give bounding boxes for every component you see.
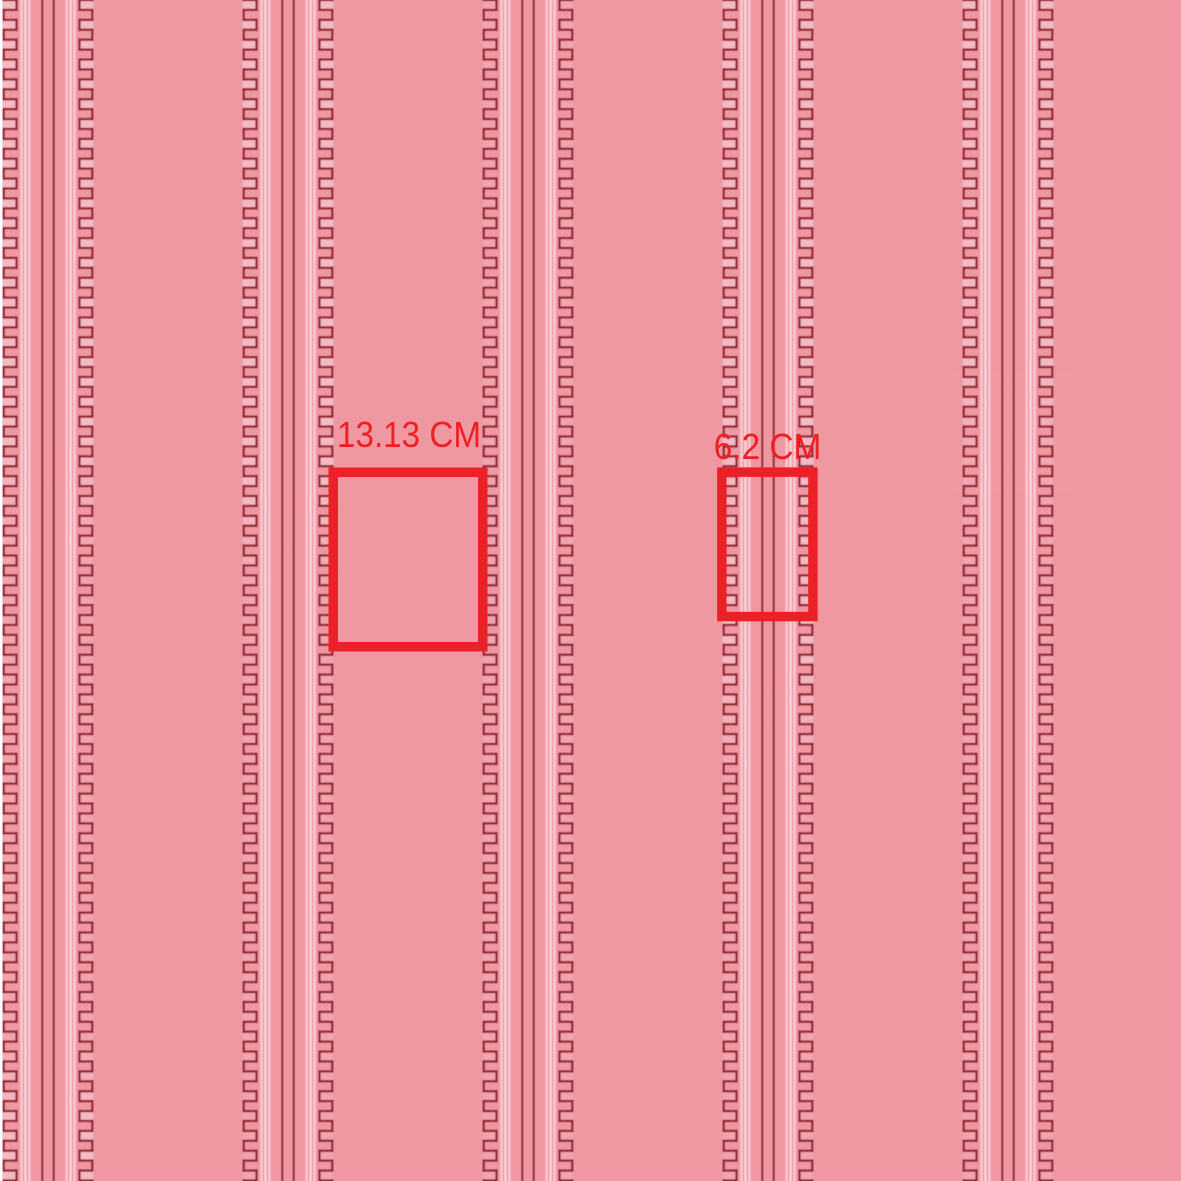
svg-text:13.13 CM: 13.13 CM [337,414,481,455]
svg-text:6.2 CM: 6.2 CM [714,426,822,467]
